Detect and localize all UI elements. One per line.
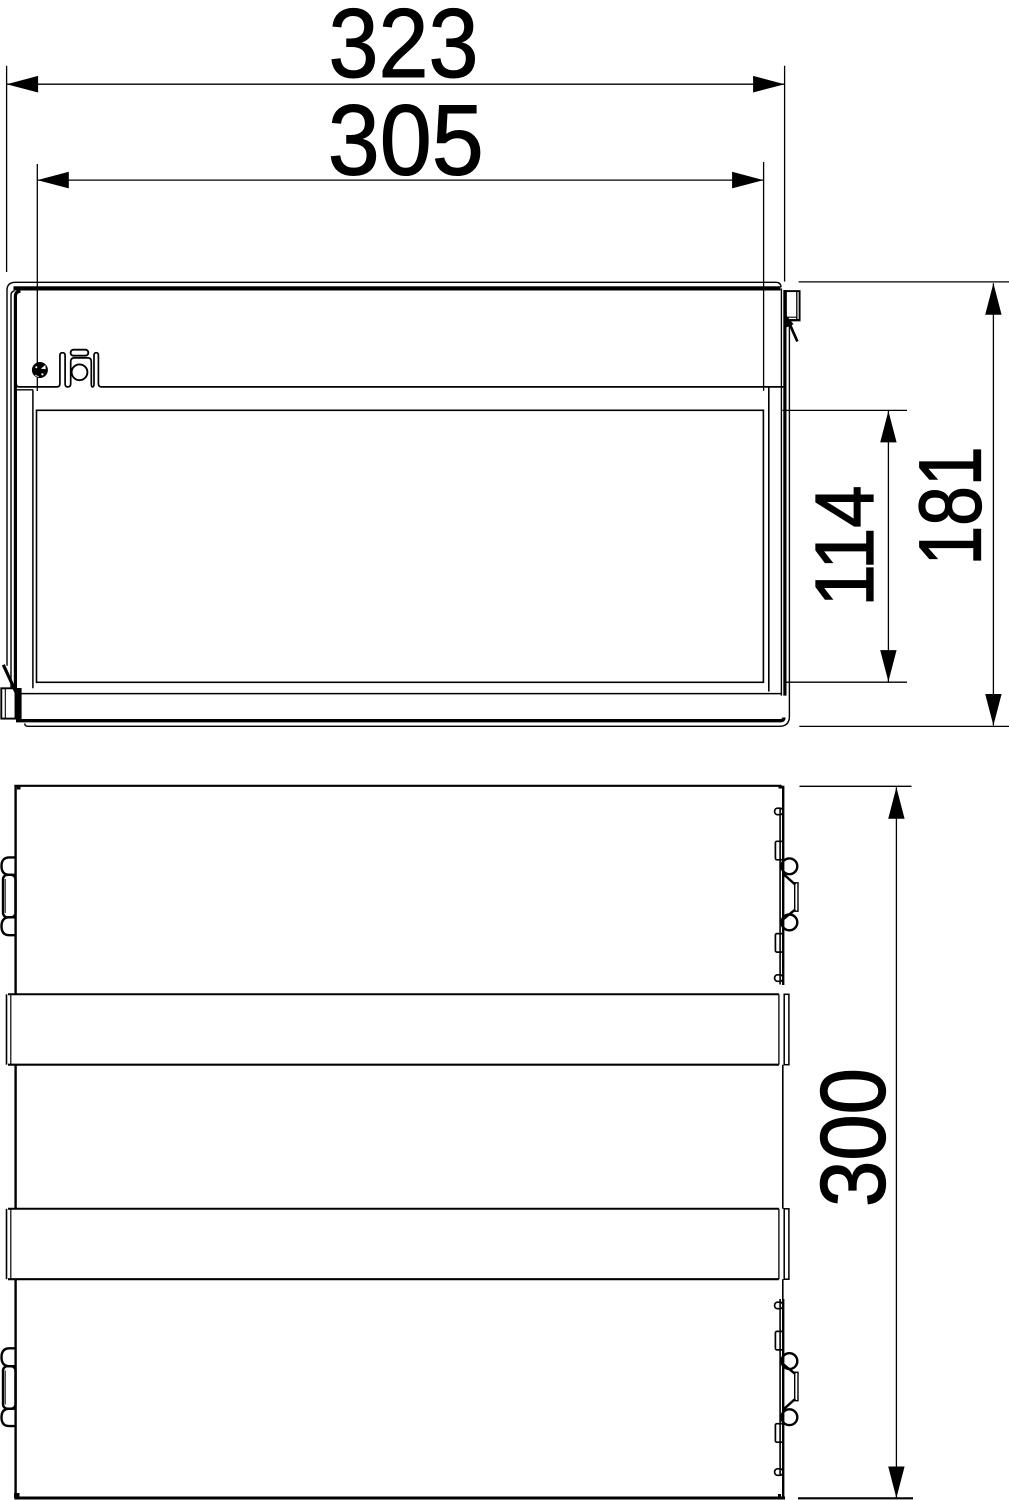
svg-text:114: 114 bbox=[798, 486, 891, 607]
svg-text:181: 181 bbox=[901, 447, 1000, 566]
svg-text:300: 300 bbox=[803, 1068, 905, 1207]
svg-text:323: 323 bbox=[329, 0, 479, 98]
